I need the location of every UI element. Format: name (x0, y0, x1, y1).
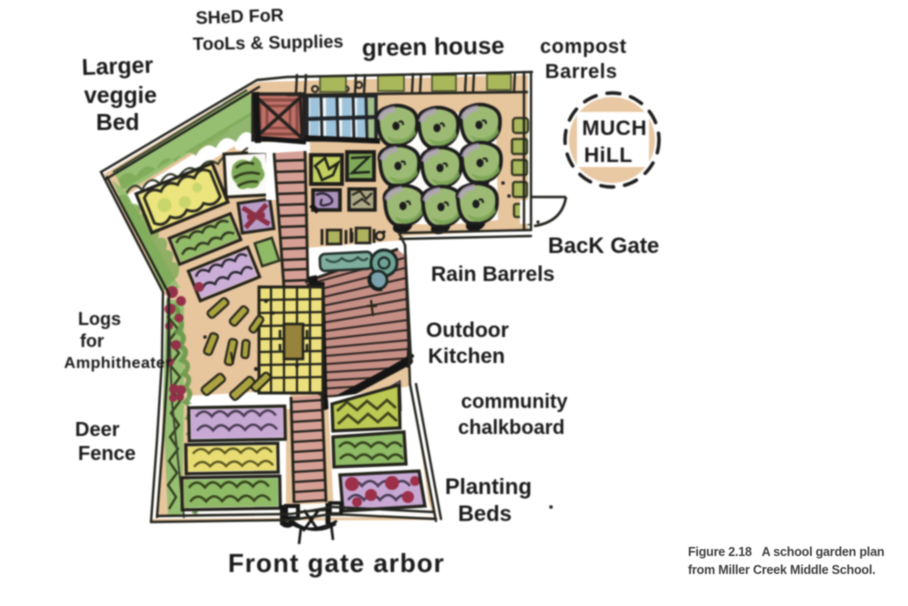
svg-text:Kitchen: Kitchen (428, 345, 505, 368)
svg-text:Front gate arbor: Front gate arbor (228, 548, 445, 578)
svg-text:Larger: Larger (81, 52, 153, 80)
svg-text:Barrels: Barrels (545, 61, 617, 83)
svg-text:Amphitheater: Amphitheater (64, 355, 172, 372)
svg-text:compost: compost (540, 36, 627, 58)
svg-text:Rain Barrels: Rain Barrels (431, 263, 555, 286)
svg-text:Bed: Bed (96, 109, 139, 135)
svg-text:TooLs & Supplies: TooLs & Supplies (193, 31, 344, 54)
svg-text:Fence: Fence (78, 443, 136, 465)
svg-text:SHeD FoR: SHeD FoR (195, 5, 284, 28)
svg-text:BacK Gate: BacK Gate (548, 233, 659, 258)
svg-text:community: community (461, 391, 569, 413)
svg-text:green house: green house (362, 33, 505, 62)
svg-text:veggie: veggie (84, 82, 157, 108)
svg-text:Beds: Beds (458, 501, 512, 526)
svg-text:HiLL: HiLL (584, 144, 633, 167)
svg-text:MUCH: MUCH (582, 117, 647, 140)
svg-text:Deer: Deer (75, 419, 120, 441)
svg-text:Outdoor: Outdoor (426, 319, 509, 342)
svg-text:chalkboard: chalkboard (458, 417, 565, 439)
svg-text:for: for (80, 331, 104, 351)
svg-text:Logs: Logs (78, 309, 121, 329)
svg-text:Planting: Planting (445, 474, 532, 499)
